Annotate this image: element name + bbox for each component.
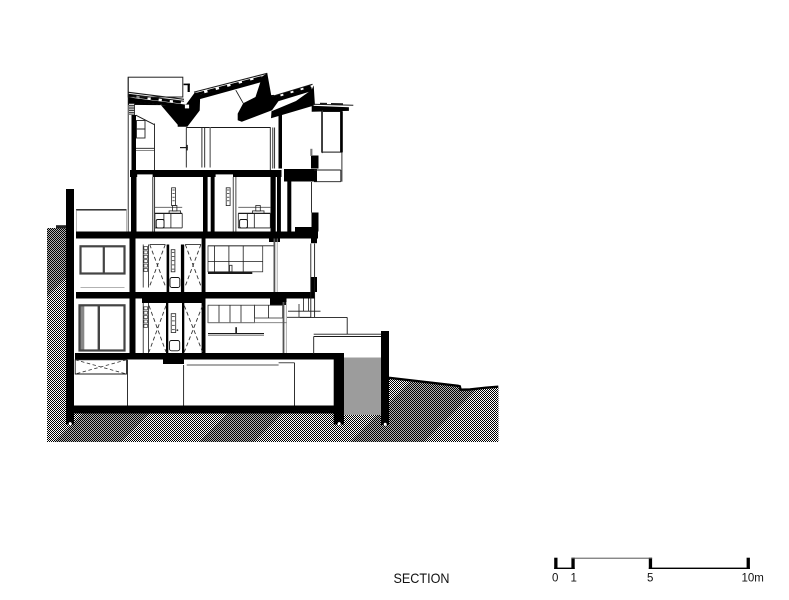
svg-text:0: 0 xyxy=(552,573,558,585)
svg-text:1: 1 xyxy=(571,573,577,585)
svg-text:SECTION: SECTION xyxy=(394,571,450,586)
svg-text:10m: 10m xyxy=(742,573,764,585)
svg-text:5: 5 xyxy=(647,573,653,585)
